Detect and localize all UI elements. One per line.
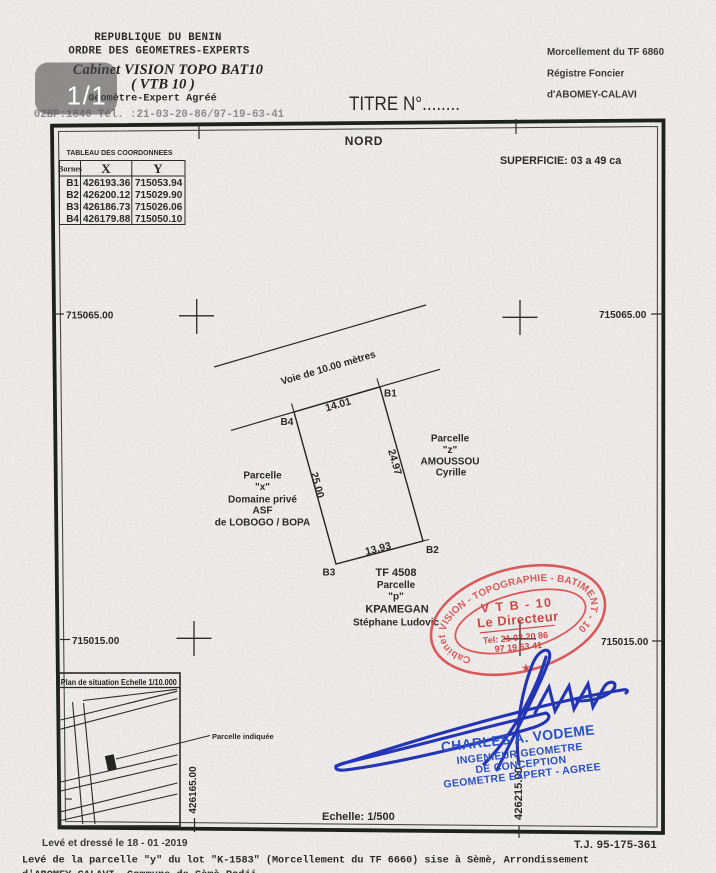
svg-text:B2: B2 — [426, 545, 439, 556]
svg-text:715026.06: 715026.06 — [135, 202, 183, 213]
svg-text:715015.00: 715015.00 — [72, 636, 120, 647]
svg-text:T.J. 95-175-361: T.J. 95-175-361 — [574, 839, 657, 851]
svg-text:B4: B4 — [281, 417, 294, 428]
svg-text:426186.73: 426186.73 — [83, 202, 131, 213]
svg-text:TF 4508: TF 4508 — [376, 567, 417, 579]
svg-text:B1: B1 — [384, 389, 397, 400]
svg-text:de LOBOGO / BOPA: de LOBOGO / BOPA — [215, 518, 310, 529]
svg-text:d'ABOMEY-CALAVI: d'ABOMEY-CALAVI — [547, 90, 637, 101]
svg-text:B3: B3 — [66, 202, 79, 213]
svg-text:Plan de situation Echelle 1/10: Plan de situation Echelle 1/10.000 — [61, 677, 177, 687]
svg-text:Régistre Foncier: Régistre Foncier — [547, 69, 624, 80]
svg-text:"p": "p" — [388, 592, 404, 603]
svg-text:Bornes: Bornes — [58, 165, 82, 174]
svg-text:ASF: ASF — [253, 506, 273, 517]
svg-text:TITRE N°........: TITRE N°........ — [349, 94, 460, 115]
svg-text:SUPERFICIE: 03 a 49 ca: SUPERFICIE: 03 a 49 ca — [500, 155, 622, 167]
svg-text:Parcelle: Parcelle — [431, 434, 470, 445]
svg-text:426165.00: 426165.00 — [188, 766, 199, 814]
svg-text:( VTB 10 ): ( VTB 10 ) — [131, 77, 195, 93]
svg-text:"z": "z" — [443, 445, 458, 456]
svg-text:Parcelle: Parcelle — [243, 471, 282, 482]
svg-text:d'ABOMEY-CALAVI, Commune de Sè: d'ABOMEY-CALAVI, Commune de Sèmè-Podji — [22, 869, 257, 873]
svg-text:NORD: NORD — [345, 134, 384, 148]
svg-text:Levé de la parcelle "y" du lot: Levé de la parcelle "y" du lot "K-1583" … — [22, 855, 589, 867]
svg-text:715029.90: 715029.90 — [135, 190, 183, 201]
svg-text:Y: Y — [153, 161, 163, 176]
svg-text:AMOUSSOU: AMOUSSOU — [421, 457, 480, 468]
svg-text:715065.00: 715065.00 — [66, 311, 114, 322]
svg-text:715053.94: 715053.94 — [135, 178, 183, 189]
svg-text:B4: B4 — [66, 214, 79, 225]
svg-text:TABLEAU DES COORDONNEES: TABLEAU DES COORDONNEES — [67, 148, 173, 157]
svg-text:ORDRE DES GEOMETRES-EXPERTS: ORDRE DES GEOMETRES-EXPERTS — [68, 46, 250, 58]
svg-text:715065.00: 715065.00 — [599, 310, 647, 321]
svg-text:Cyrille: Cyrille — [436, 468, 467, 479]
svg-text:426193.36: 426193.36 — [83, 178, 131, 189]
svg-text:B2: B2 — [66, 190, 79, 201]
svg-text:"x": "x" — [255, 482, 270, 493]
svg-text:Echelle: 1/500: Echelle: 1/500 — [322, 811, 395, 823]
svg-text:426179.88: 426179.88 — [83, 214, 131, 225]
svg-text:426200.12: 426200.12 — [83, 190, 131, 201]
svg-text:Domaine privé: Domaine privé — [228, 495, 297, 506]
svg-text:715015.00: 715015.00 — [601, 637, 649, 648]
svg-text:B3: B3 — [323, 568, 336, 579]
svg-text:Parcelle: Parcelle — [377, 580, 416, 591]
svg-text:1/1: 1/1 — [67, 81, 108, 111]
svg-text:Stéphane Ludovic: Stéphane Ludovic — [353, 618, 440, 629]
svg-text:715050.10: 715050.10 — [135, 214, 183, 225]
svg-text:KPAMEGAN: KPAMEGAN — [365, 604, 428, 616]
svg-text:Parcelle indiquée: Parcelle indiquée — [212, 732, 274, 741]
svg-text:B1: B1 — [66, 178, 79, 189]
svg-text:X: X — [101, 161, 111, 176]
svg-text:REPUBLIQUE DU BENIN: REPUBLIQUE DU BENIN — [94, 32, 222, 44]
svg-text:Levé et dressé le 18 - 01 -20: Levé et dressé le 18 - 01 -2019 — [42, 838, 188, 849]
svg-text:Morcellement du TF 6860: Morcellement du TF 6860 — [547, 47, 665, 58]
